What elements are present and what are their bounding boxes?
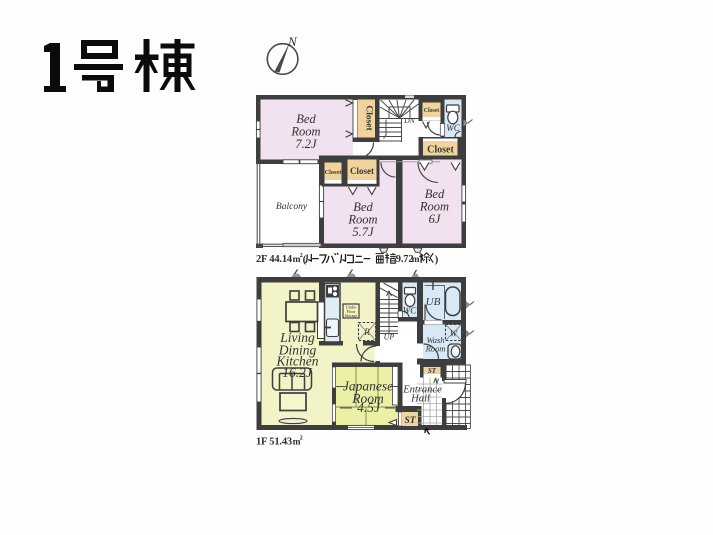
svg-text:Closet: Closet — [325, 169, 343, 176]
svg-text:Room: Room — [425, 344, 446, 354]
svg-text:2: 2 — [300, 436, 303, 442]
svg-text:WC: WC — [403, 306, 417, 316]
svg-text:UP: UP — [384, 333, 395, 342]
svg-text:6J: 6J — [429, 212, 442, 226]
svg-text:4.5J: 4.5J — [357, 400, 381, 415]
svg-text:N: N — [287, 34, 298, 49]
svg-text:Closet: Closet — [364, 105, 374, 131]
svg-text:16.2J: 16.2J — [282, 365, 313, 380]
svg-text:UB: UB — [426, 296, 441, 308]
svg-text:Hall: Hall — [410, 394, 430, 405]
svg-text:2F 44.14: 2F 44.14 — [256, 254, 293, 265]
svg-text:Storage: Storage — [345, 313, 358, 318]
svg-text:R: R — [363, 327, 370, 337]
svg-text:DN: DN — [403, 116, 415, 125]
svg-text:WC: WC — [446, 123, 460, 133]
svg-text:5.7J: 5.7J — [352, 225, 375, 239]
svg-text:Balcony: Balcony — [276, 202, 308, 212]
svg-text:1F 51.43: 1F 51.43 — [256, 437, 292, 448]
svg-text:7.2J: 7.2J — [295, 137, 318, 151]
svg-text:Closet: Closet — [424, 108, 440, 114]
svg-text:Closet: Closet — [427, 145, 454, 156]
svg-text:Closet: Closet — [350, 166, 374, 176]
svg-text:ST: ST — [428, 367, 437, 375]
svg-text:(: ( — [303, 253, 307, 265]
svg-text:): ) — [435, 253, 439, 265]
svg-text:ST: ST — [404, 416, 416, 426]
